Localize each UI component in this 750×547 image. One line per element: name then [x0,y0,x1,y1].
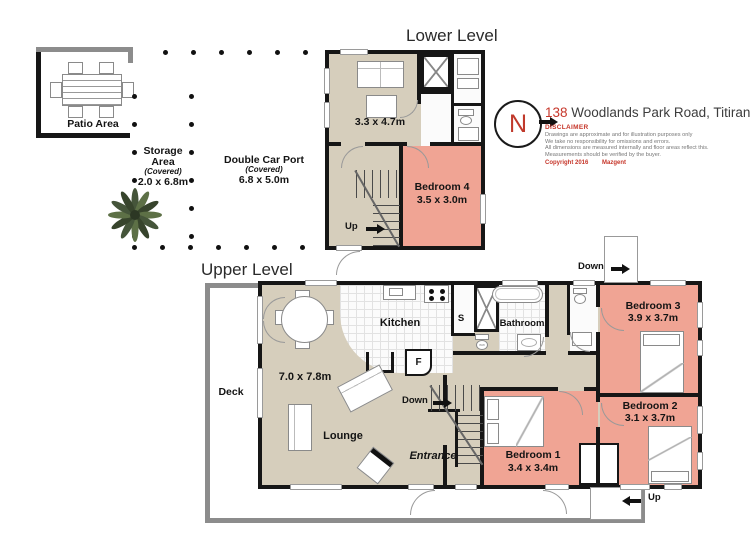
window [697,340,703,356]
window [480,194,486,224]
window [697,406,703,434]
fridge-icon: F [405,349,432,376]
dining-table-icon [281,296,328,343]
table-icon [366,95,397,118]
stove-icon [424,285,449,303]
window [573,280,595,286]
lounge-label: Lounge [318,430,368,442]
deck-edge [205,283,262,288]
down-outer-label: Down [578,262,604,272]
bedroom-1-label: Bedroom 1 [483,450,583,462]
patio-wall [36,52,41,138]
door-gap [408,484,434,490]
pillow-icon [651,471,689,482]
stairs-icon [458,414,483,464]
disclaimer-line: We take no responsibility for omissions … [545,139,709,146]
copyright-label: Copyright 2016 [545,160,588,166]
copyright-line: Copyright 2016 Mazgent [545,160,626,166]
disclaimer-text: Drawings are approximate and for illustr… [545,132,709,158]
up-outer-label: Up [648,493,661,503]
lounge-dim: 7.0 x 7.8m [275,371,335,383]
bedroom-3-label: Bedroom 3 [608,301,698,313]
window [502,280,538,286]
window [305,280,337,286]
patio-chair [68,62,83,74]
address-number: 138 [545,105,568,120]
window [697,452,703,470]
bedroom-1-dim: 3.4 x 3.4m [483,463,583,475]
patio-wall [36,133,130,138]
patio-table [62,74,122,106]
disclaimer-line: All dimensions are measured internally a… [545,145,709,152]
door-arc [336,251,360,275]
lower-living-dim: 3.3 x 4.7m [335,117,425,129]
bed-fold [516,396,544,447]
window [620,484,650,490]
patio-area-label: Patio Area [60,119,126,131]
external-stairs-down [604,236,638,283]
patio-chair [68,106,83,118]
fridge-label: F [415,357,421,368]
lower-level-title: Lower Level [406,26,498,46]
door-arc [543,490,567,514]
window [340,49,368,55]
down-arrow-icon [433,398,452,408]
window [324,102,330,128]
disclaimer-title: DISCLAIMER [545,124,588,131]
closet [598,443,619,485]
vanity-icon [458,127,479,141]
bathtub-inner [495,288,540,300]
floor-plan-page: Lower Level Upper Level Patio Area Stora… [0,0,750,547]
compass-icon: N [494,100,542,148]
kitchen-label: Kitchen [370,317,430,329]
door-arc [410,490,435,515]
disclaimer-line: Drawings are approximate and for illustr… [545,132,709,139]
wc-tiny-label: ww [476,342,488,347]
bench-icon [457,78,479,89]
window [664,484,682,490]
storage-area-dim: 2.0 x 6.8m [133,177,193,189]
compass-north-label: N [509,110,527,139]
window [455,484,477,490]
bedroom-2-dim: 3.1 x 3.7m [605,413,695,425]
patio-chair [99,62,114,74]
bed-fold [648,437,692,461]
address-street: Woodlands Park Road, Titirangi [571,105,750,120]
bedroom-4-label: Bedroom 4 [403,182,481,194]
up-label: Up [345,222,358,232]
toilet-icon [574,294,586,304]
bedroom-2-label: Bedroom 2 [605,401,695,413]
pillow-icon [643,334,680,346]
up-arrow-icon [366,224,385,234]
patio-wall [128,47,133,63]
entrance-label: Entrance [405,450,461,462]
door-gap [257,296,263,344]
deck-edge [205,518,645,523]
brand-label: Mazgent [602,160,626,166]
window [257,368,263,418]
down-label: Down [402,396,428,406]
patio-chair [99,106,114,118]
sink-icon [389,288,403,296]
window [324,68,330,94]
window [290,484,342,490]
shower-icon [421,54,451,90]
sofa-icon [357,61,404,88]
pillow-icon [487,399,499,420]
deck-label: Deck [210,387,252,399]
carport-dim: 6.8 x 5.0m [218,175,310,187]
laundry-tub-icon [457,58,479,75]
pillow-icon [487,423,499,444]
up-arrow-icon [622,496,641,506]
down-arrow-icon [611,264,630,274]
upper-level-title: Upper Level [201,260,293,280]
deck-edge [205,283,210,523]
toilet-icon [458,109,474,116]
patio-wall [36,47,133,52]
shower-closet-room [453,285,474,335]
patio-chair [50,82,62,98]
plant-icon [108,188,162,242]
address-line: 138 Woodlands Park Road, Titirangi [545,105,750,120]
sofa-icon [288,404,312,451]
door-gap [545,484,569,490]
shower-label: S [453,314,469,324]
bedroom-4-dim: 3.5 x 3.0m [403,195,481,207]
window [650,280,686,286]
bathroom-label: Bathroom [494,319,550,329]
toilet-icon [460,116,472,125]
bed-fold [640,363,684,393]
disclaimer-line: Measurements should be verified by the b… [545,152,709,159]
bedroom-3-dim: 3.9 x 3.7m [608,313,698,325]
